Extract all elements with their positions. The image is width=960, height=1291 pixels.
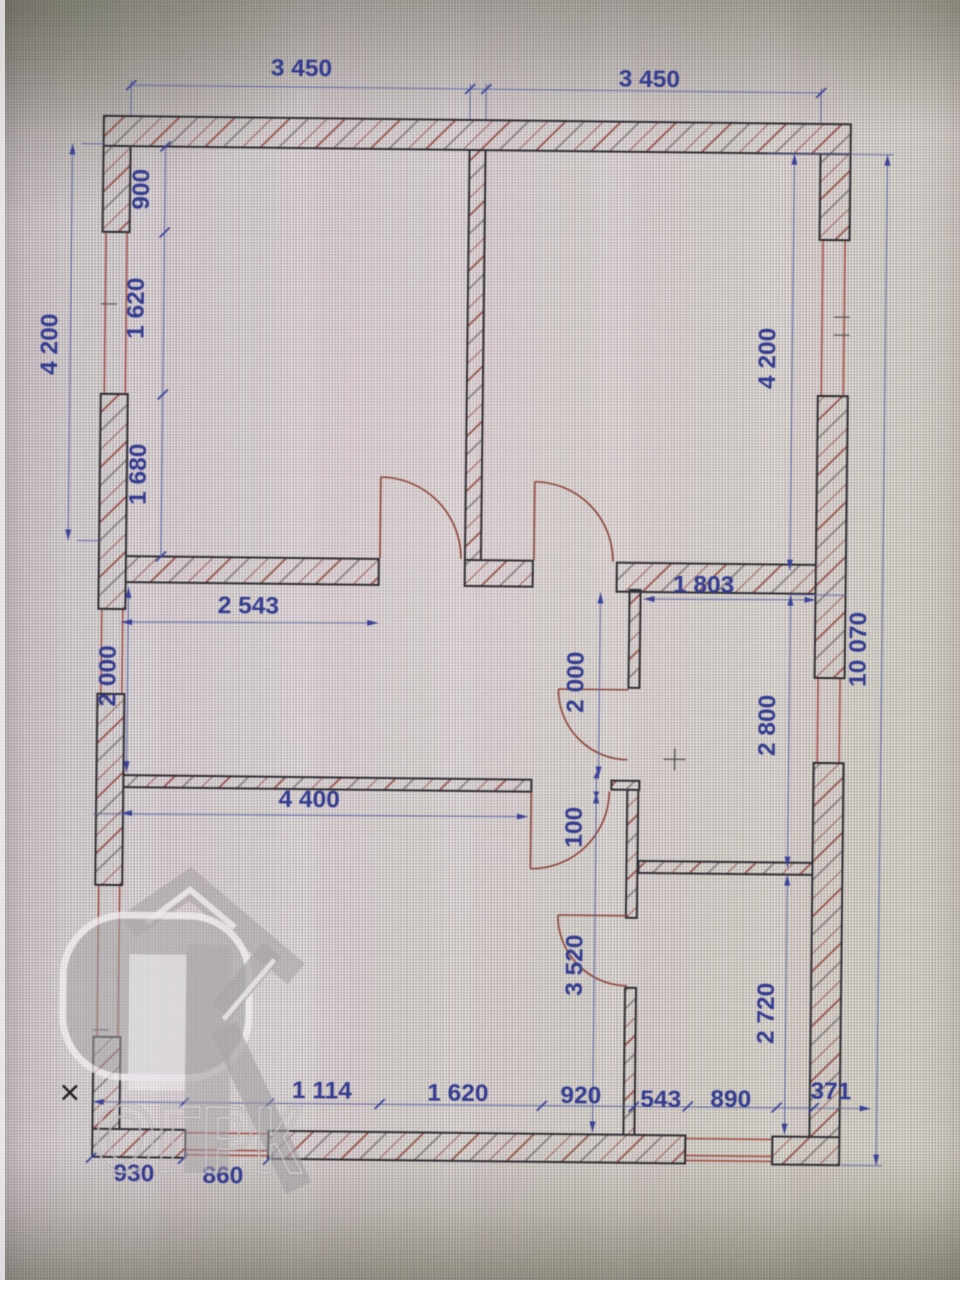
svg-text:371: 371 [810,1078,851,1105]
svg-text:3 450: 3 450 [271,55,333,83]
svg-text:2 720: 2 720 [752,983,780,1045]
svg-text:890: 890 [710,1086,751,1113]
svg-text:4 200: 4 200 [36,313,64,375]
svg-text:1 803: 1 803 [673,571,735,599]
svg-text:100: 100 [561,807,588,848]
svg-text:ОГРК: ОГРК [94,1086,304,1194]
svg-text:543: 543 [640,1086,681,1113]
svg-text:3 520: 3 520 [561,934,589,996]
svg-text:900: 900 [128,169,155,210]
svg-text:2 543: 2 543 [218,592,280,620]
svg-text:920: 920 [560,1082,601,1109]
svg-text:1 620: 1 620 [427,1080,489,1108]
svg-text:2 000: 2 000 [94,645,122,707]
svg-text:3 450: 3 450 [619,66,681,94]
svg-text:2 000: 2 000 [562,651,590,713]
svg-text:1 680: 1 680 [125,443,153,505]
svg-text:2 800: 2 800 [754,695,782,757]
svg-text:10 070: 10 070 [844,612,872,687]
svg-text:4 200: 4 200 [754,328,782,390]
svg-text:4 400: 4 400 [278,786,340,814]
svg-text:1 620: 1 620 [122,277,150,339]
